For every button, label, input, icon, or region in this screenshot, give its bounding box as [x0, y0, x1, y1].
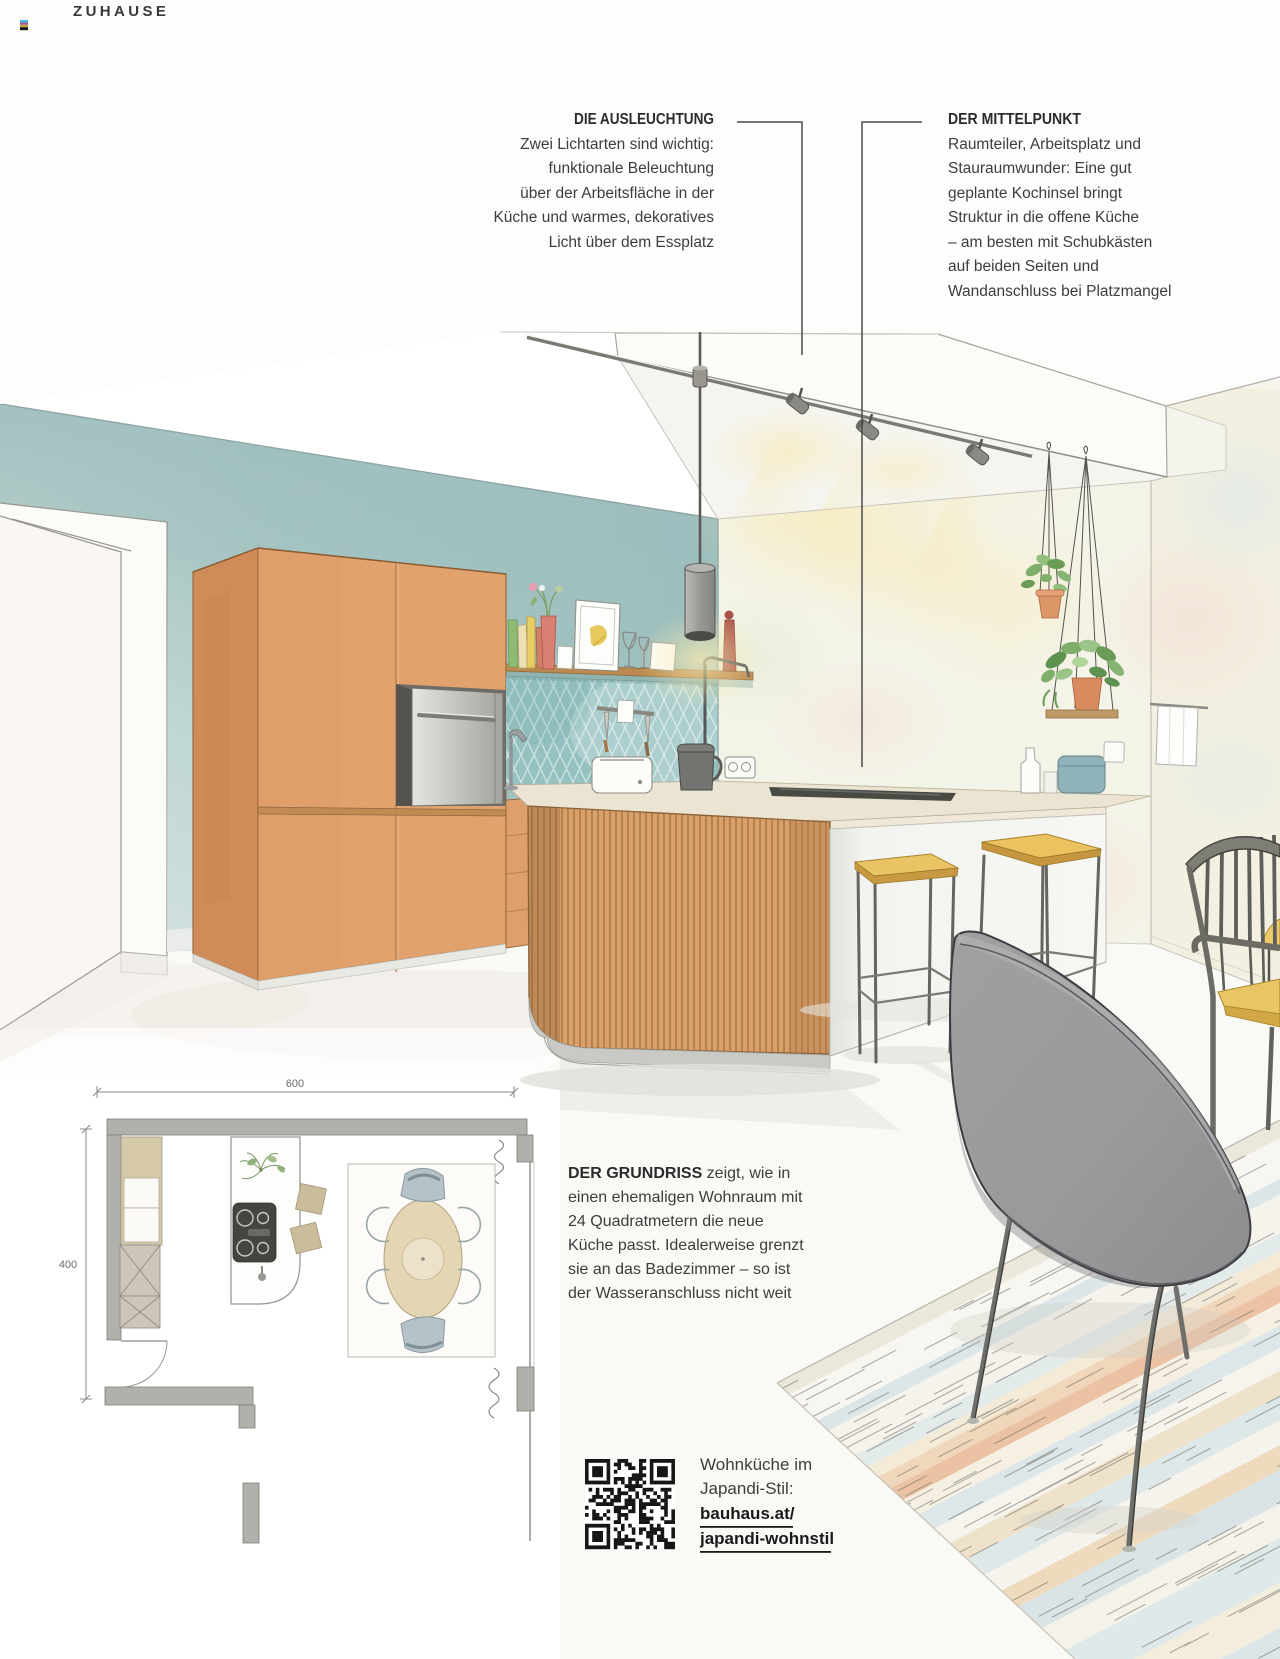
svg-text:Raumteiler, Arbeitsplatz und: Raumteiler, Arbeitsplatz und	[948, 136, 1141, 153]
svg-text:japandi-wohnstil: japandi-wohnstil	[699, 1529, 834, 1548]
svg-text:funktionale Beleuchtung: funktionale Beleuchtung	[549, 160, 714, 177]
svg-text:Japandi-Stil:: Japandi-Stil:	[700, 1479, 794, 1498]
svg-text:DIE AUSLEUCHTUNG: DIE AUSLEUCHTUNG	[574, 111, 714, 128]
svg-text:Zwei Lichtarten sind wichtig:: Zwei Lichtarten sind wichtig:	[520, 136, 714, 153]
svg-text:geplante Kochinsel bringt: geplante Kochinsel bringt	[948, 185, 1123, 202]
svg-text:bauhaus.at/: bauhaus.at/	[700, 1504, 795, 1523]
svg-text:600: 600	[286, 1078, 304, 1090]
svg-text:einen ehemaligen Wohnraum mit: einen ehemaligen Wohnraum mit	[568, 1189, 803, 1206]
svg-text:– am besten mit Schubkästen: – am besten mit Schubkästen	[948, 234, 1152, 251]
svg-text:Küche und warmes, dekoratives: Küche und warmes, dekoratives	[493, 209, 714, 226]
svg-text:auf beiden Seiten und: auf beiden Seiten und	[948, 258, 1099, 275]
svg-text:Wohnküche im: Wohnküche im	[700, 1455, 812, 1474]
svg-text:der Wasseranschluss nicht weit: der Wasseranschluss nicht weit	[568, 1285, 792, 1302]
svg-text:DER GRUNDRISS zeigt, wie in: DER GRUNDRISS zeigt, wie in	[568, 1165, 790, 1182]
svg-text:Licht über dem Essplatz: Licht über dem Essplatz	[549, 234, 714, 251]
svg-text:24 Quadratmetern die neue: 24 Quadratmetern die neue	[568, 1213, 764, 1230]
svg-text:Küche passt. Idealerweise gren: Küche passt. Idealerweise grenzt	[568, 1237, 804, 1254]
svg-text:Struktur in die offene Küche: Struktur in die offene Küche	[948, 209, 1139, 226]
svg-text:Stauraumwunder: Eine gut: Stauraumwunder: Eine gut	[948, 160, 1132, 177]
svg-text:DER MITTELPUNKT: DER MITTELPUNKT	[948, 111, 1081, 128]
svg-text:über der Arbeitsfläche in der: über der Arbeitsfläche in der	[520, 185, 714, 202]
svg-text:sie an das Badezimmer – so ist: sie an das Badezimmer – so ist	[568, 1261, 791, 1278]
svg-text:Wandanschluss bei Platzmangel: Wandanschluss bei Platzmangel	[948, 283, 1171, 300]
svg-text:400: 400	[59, 1259, 77, 1271]
svg-text:ZUHAUSE: ZUHAUSE	[73, 3, 169, 20]
